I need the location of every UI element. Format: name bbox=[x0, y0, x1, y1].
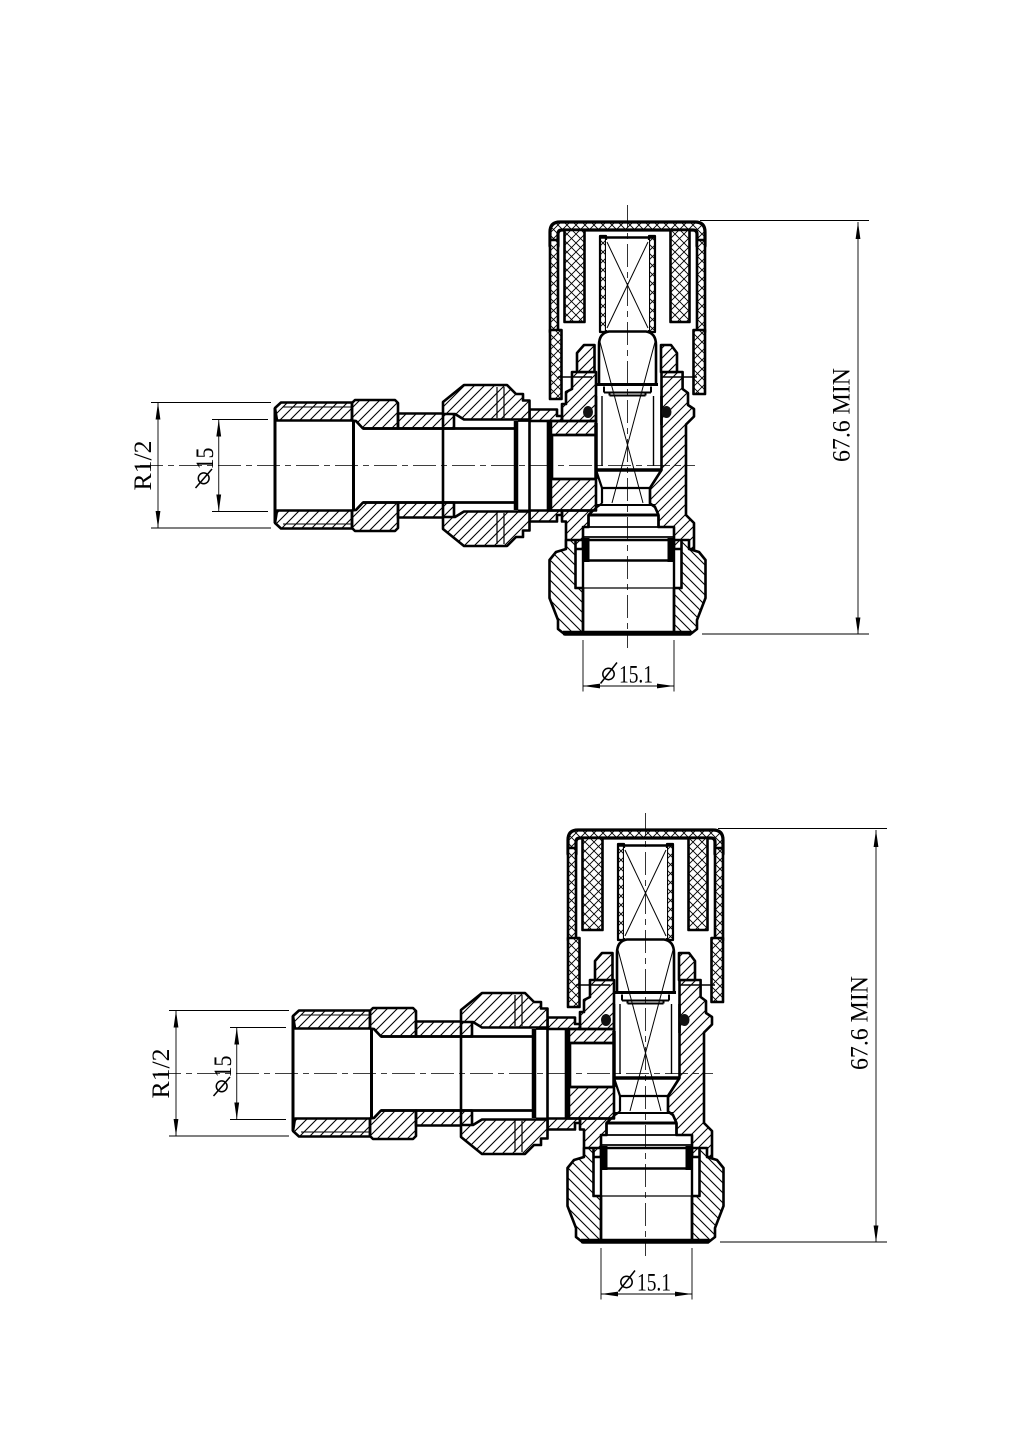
svg-text:15.1: 15.1 bbox=[619, 662, 653, 689]
svg-text:67.6 MIN: 67.6 MIN bbox=[847, 976, 874, 1070]
svg-text:15: 15 bbox=[210, 1056, 237, 1078]
svg-text:67.6 MIN: 67.6 MIN bbox=[829, 368, 856, 462]
svg-text:15: 15 bbox=[192, 448, 219, 470]
svg-text:R1/2: R1/2 bbox=[130, 441, 157, 491]
svg-text:15.1: 15.1 bbox=[637, 1270, 671, 1297]
svg-text:R1/2: R1/2 bbox=[148, 1049, 175, 1099]
